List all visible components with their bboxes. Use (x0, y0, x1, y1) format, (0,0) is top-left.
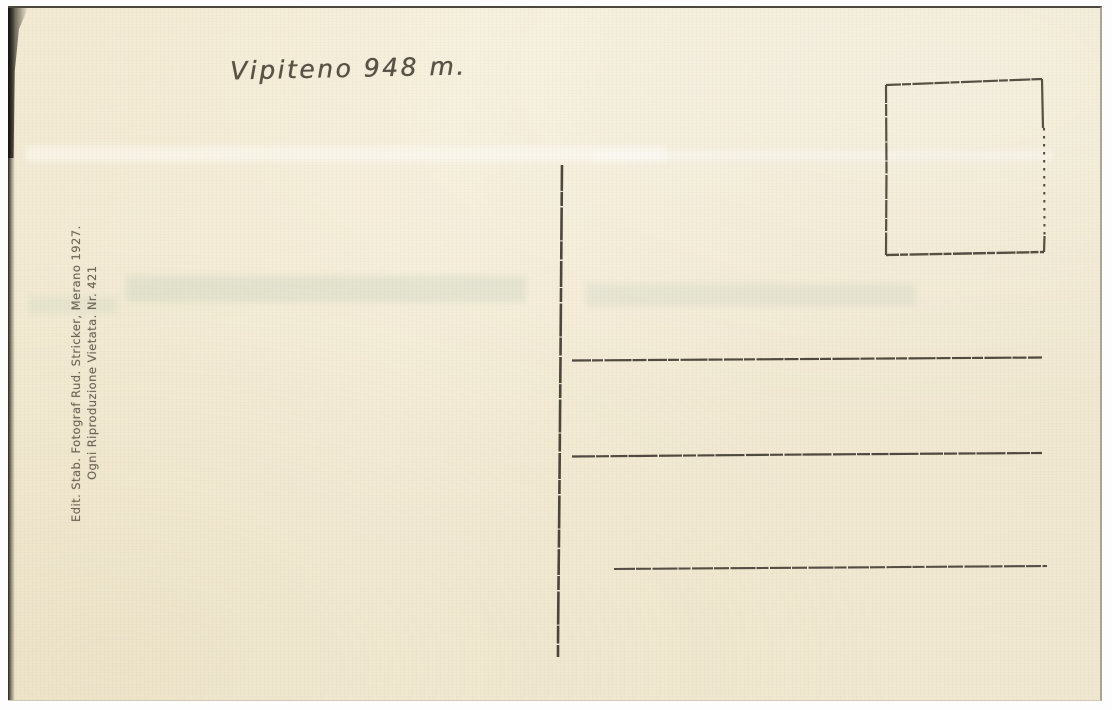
address-line-1 (572, 358, 1042, 361)
address-line-3 (614, 566, 1047, 569)
postcard-caption: Vipiteno 948 m. (230, 52, 467, 86)
scan-artifact-tint-streak (126, 276, 526, 302)
publisher-imprint-line-2: Ogni Riproduzione Vietata. Nr. 421 (85, 202, 101, 522)
scan-artifact-light-streak (26, 146, 666, 162)
paper-grain-texture (8, 8, 1100, 700)
publisher-imprint-line-1: Edit. Stab. Fotograf Rud. Stricker, Mera… (69, 202, 85, 522)
scan-artifact-light-streak (593, 150, 1053, 161)
publisher-imprint: Edit. Stab. Fotograf Rud. Stricker, Mera… (69, 202, 103, 522)
printed-rules-layer (8, 8, 1102, 703)
postcard-back: Vipiteno 948 m. Edit. Stab. Fotograf Rud… (8, 6, 1102, 701)
scan-artifact-tint-streak (586, 284, 916, 306)
scanned-postcard-image: Vipiteno 948 m. Edit. Stab. Fotograf Rud… (0, 0, 1112, 710)
stamp-box (886, 79, 1045, 255)
center-divider-line (558, 165, 562, 657)
stamp-box-dotted-edge (1044, 128, 1045, 236)
address-line-2 (572, 453, 1042, 457)
left-scan-edge-wedge (8, 8, 28, 158)
